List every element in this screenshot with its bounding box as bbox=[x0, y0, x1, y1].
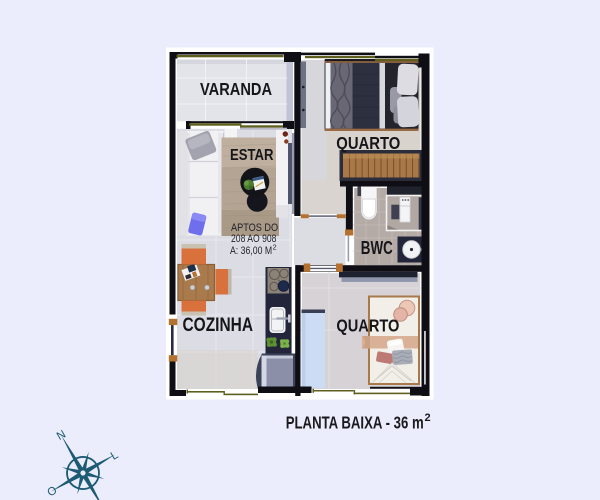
svg-text:2: 2 bbox=[273, 242, 277, 251]
svg-text:208 AO 908: 208 AO 908 bbox=[231, 233, 277, 245]
svg-text:A: 36,00 M: A: 36,00 M bbox=[230, 245, 272, 257]
svg-text:APTOS DO: APTOS DO bbox=[231, 222, 278, 234]
svg-text:QUARTO: QUARTO bbox=[336, 315, 399, 335]
svg-text:2: 2 bbox=[425, 412, 431, 424]
svg-text:ESTAR: ESTAR bbox=[230, 147, 274, 164]
svg-text:BWC: BWC bbox=[361, 238, 393, 258]
svg-text:QUARTO: QUARTO bbox=[336, 133, 400, 153]
svg-text:COZINHA: COZINHA bbox=[183, 315, 254, 336]
svg-text:PLANTA BAIXA - 36 m: PLANTA BAIXA - 36 m bbox=[286, 413, 424, 433]
svg-text:VARANDA: VARANDA bbox=[200, 79, 272, 99]
